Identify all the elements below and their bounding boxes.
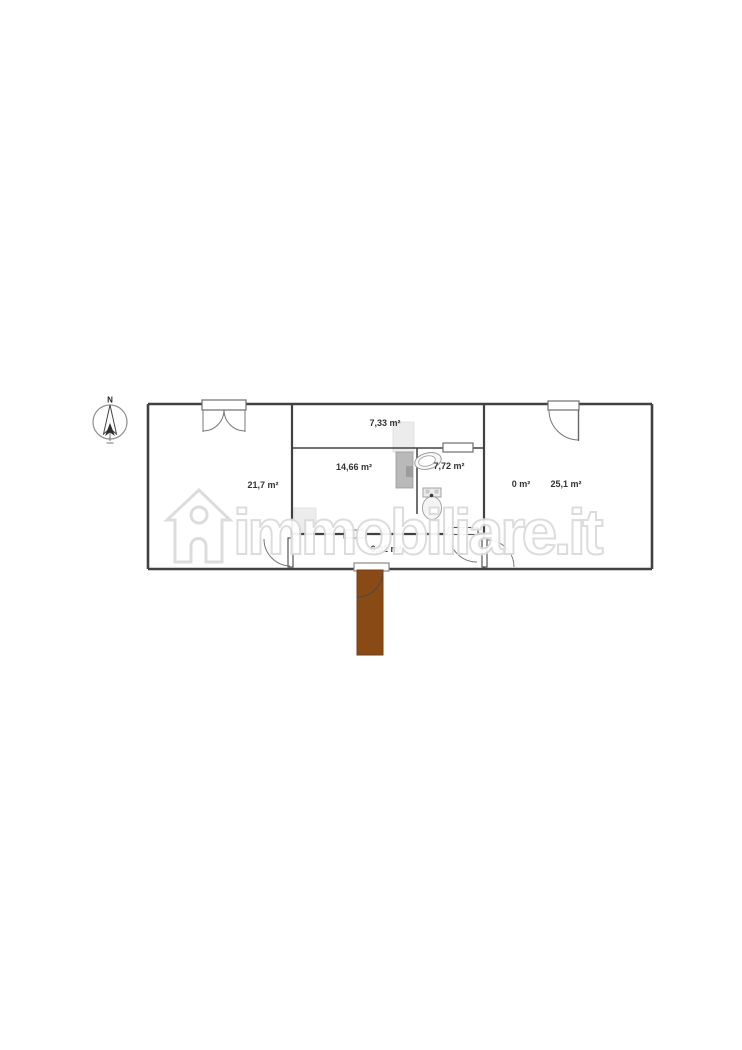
bathroom-window xyxy=(443,443,473,452)
compass-icon xyxy=(93,405,127,443)
area-label-balcony: 7,33 m² xyxy=(369,418,400,428)
floor-plan-drawing xyxy=(0,0,742,1050)
area-label-right-room: 25,1 m² xyxy=(550,479,581,489)
hallway-window xyxy=(344,530,366,538)
area-label-main-room: 14,66 m² xyxy=(336,462,372,472)
area-label-left-room: 21,7 m² xyxy=(247,480,278,490)
area-label-bathroom: 7,72 m² xyxy=(433,461,464,471)
compass-north-label: N xyxy=(107,396,113,405)
wardrobe xyxy=(396,452,413,488)
area-label-hallway: 6,02 m² xyxy=(370,544,401,554)
toilet-icon xyxy=(423,488,442,520)
area-label-zero: 0 m² xyxy=(512,479,531,489)
entrance-staircase xyxy=(354,563,389,655)
floor-pad xyxy=(294,508,316,532)
floor-plan-page: 21,7 m² 7,33 m² 14,66 m² 7,72 m² 0 m² 25… xyxy=(0,0,742,1050)
